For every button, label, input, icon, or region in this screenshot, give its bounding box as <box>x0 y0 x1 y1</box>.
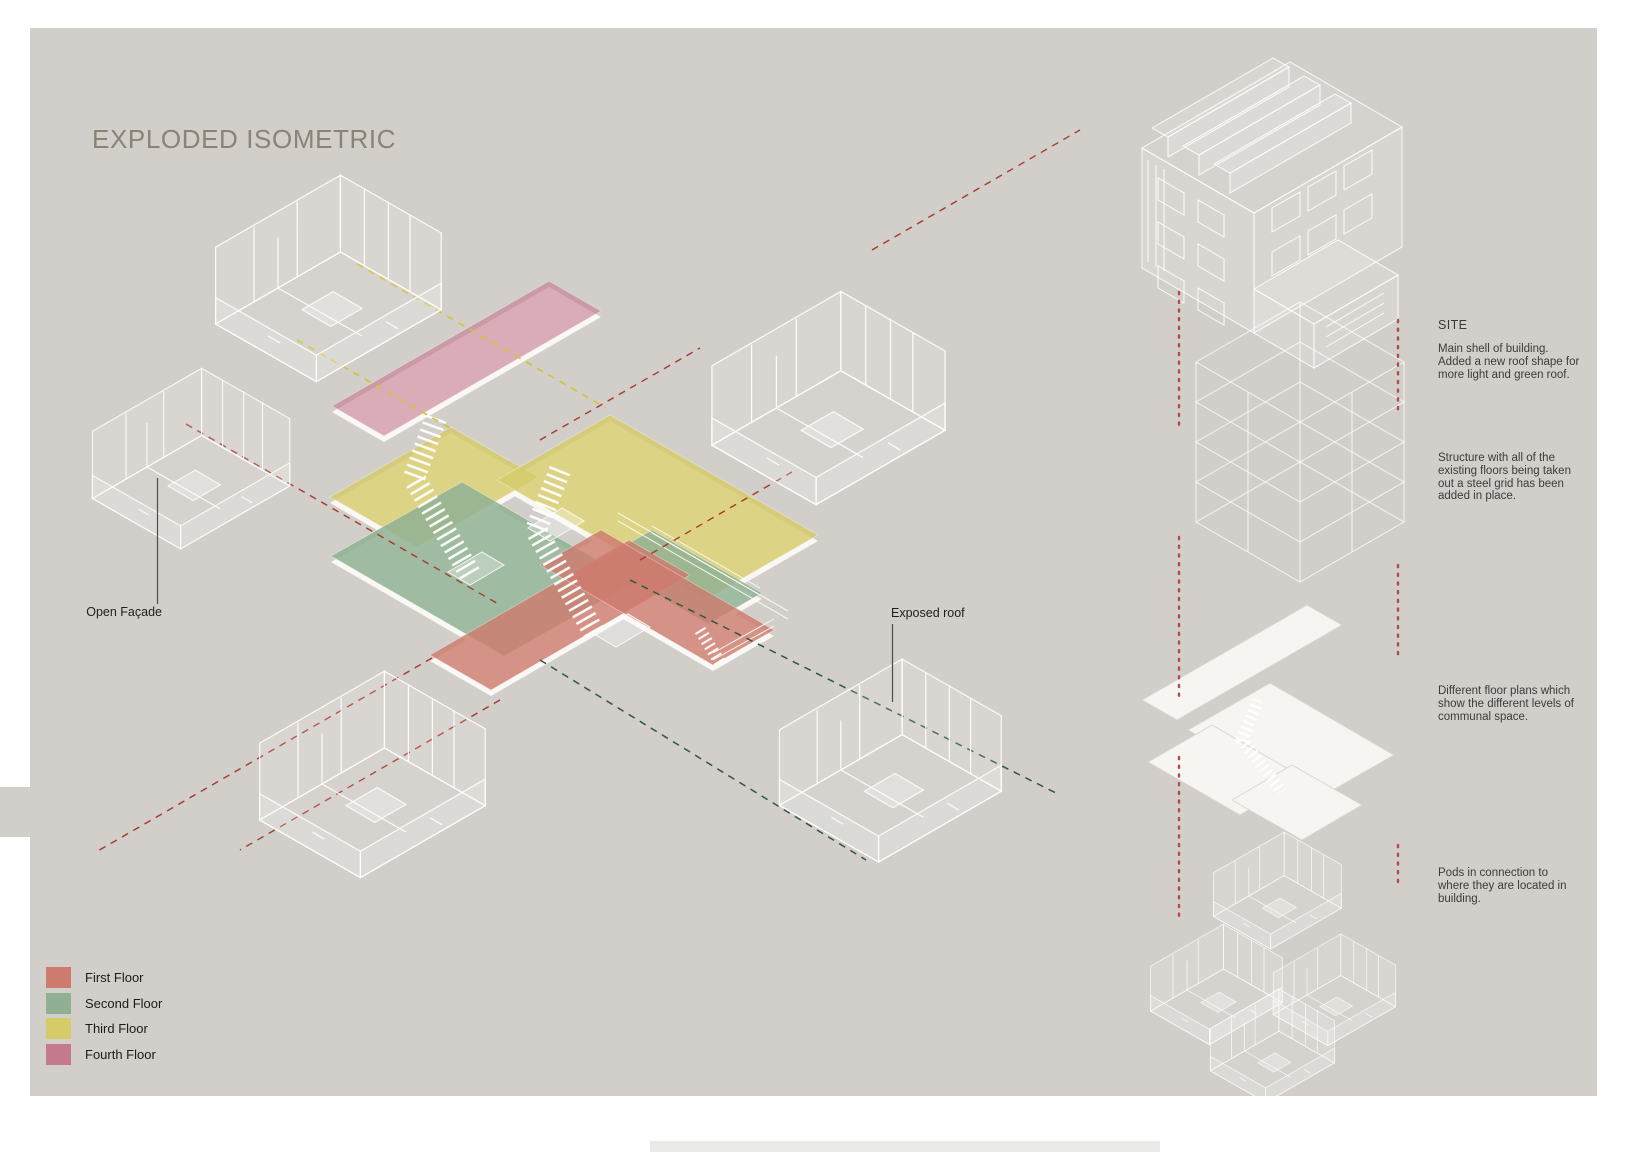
isometric-drawing <box>0 0 1629 1152</box>
pod-upper-right <box>712 291 945 504</box>
third-floor-swatch <box>46 1018 71 1039</box>
pod-left <box>92 368 289 549</box>
pod-bottom-right <box>779 659 1001 862</box>
site-heading: SITE <box>1438 318 1467 332</box>
pod-upper-left <box>216 175 442 381</box>
legend-item-fourth-floor: Fourth Floor <box>46 1044 162 1065</box>
annotation-structure: Structure with all of the existing floor… <box>1438 452 1608 503</box>
legend-item-second-floor: Second Floor <box>46 993 162 1014</box>
legend-label: Third Floor <box>85 1021 148 1036</box>
second-floor-swatch <box>46 993 71 1014</box>
steel-grid-diagram <box>1196 302 1404 582</box>
exploded-isometric-drawing <box>92 130 1080 878</box>
first-floor-swatch <box>46 967 71 988</box>
page-title: EXPLODED ISOMETRIC <box>92 124 396 155</box>
annotation-shell: Main shell of building. Added a new roof… <box>1438 343 1608 381</box>
exposed-roof-label: Exposed roof <box>891 606 965 620</box>
floor-plates-diagram <box>1142 605 1394 840</box>
open-facade-label: Open Façade <box>82 605 162 619</box>
pod-bottom-left <box>260 671 486 877</box>
annotation-pods: Pods in connection to where they are loc… <box>1438 867 1608 905</box>
site-shell-diagram <box>1142 58 1402 368</box>
legend-label: First Floor <box>85 970 144 985</box>
pods-diagram <box>1151 832 1396 1102</box>
annotation-floor-plans: Different floor plans which show the dif… <box>1438 685 1613 723</box>
page: EXPLODED ISOMETRIC Open Façade Exposed r… <box>0 0 1629 1152</box>
floor-legend: First Floor Second Floor Third Floor Fou… <box>46 967 162 1069</box>
legend-item-third-floor: Third Floor <box>46 1018 162 1039</box>
legend-label: Fourth Floor <box>85 1047 156 1062</box>
legend-label: Second Floor <box>85 996 162 1011</box>
legend-item-first-floor: First Floor <box>46 967 162 988</box>
fourth-floor-swatch <box>46 1044 71 1065</box>
